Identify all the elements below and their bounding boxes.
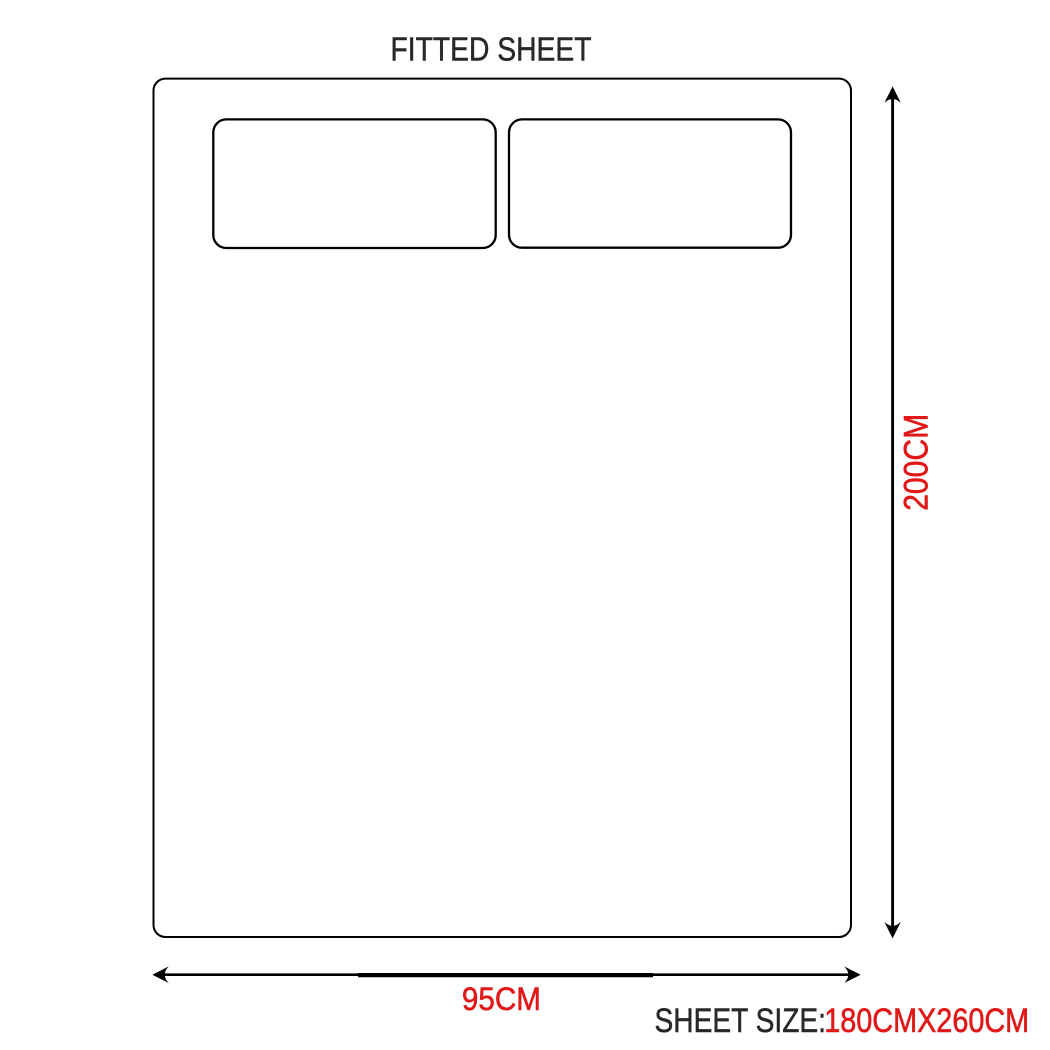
svg-text:200CM: 200CM bbox=[898, 414, 936, 511]
svg-text:95CM: 95CM bbox=[462, 981, 541, 1017]
svg-text:SHEET SIZE:: SHEET SIZE: bbox=[655, 1002, 827, 1040]
svg-text:FITTED SHEET: FITTED SHEET bbox=[391, 32, 592, 69]
svg-text:180CMX260CM: 180CMX260CM bbox=[824, 1002, 1029, 1040]
